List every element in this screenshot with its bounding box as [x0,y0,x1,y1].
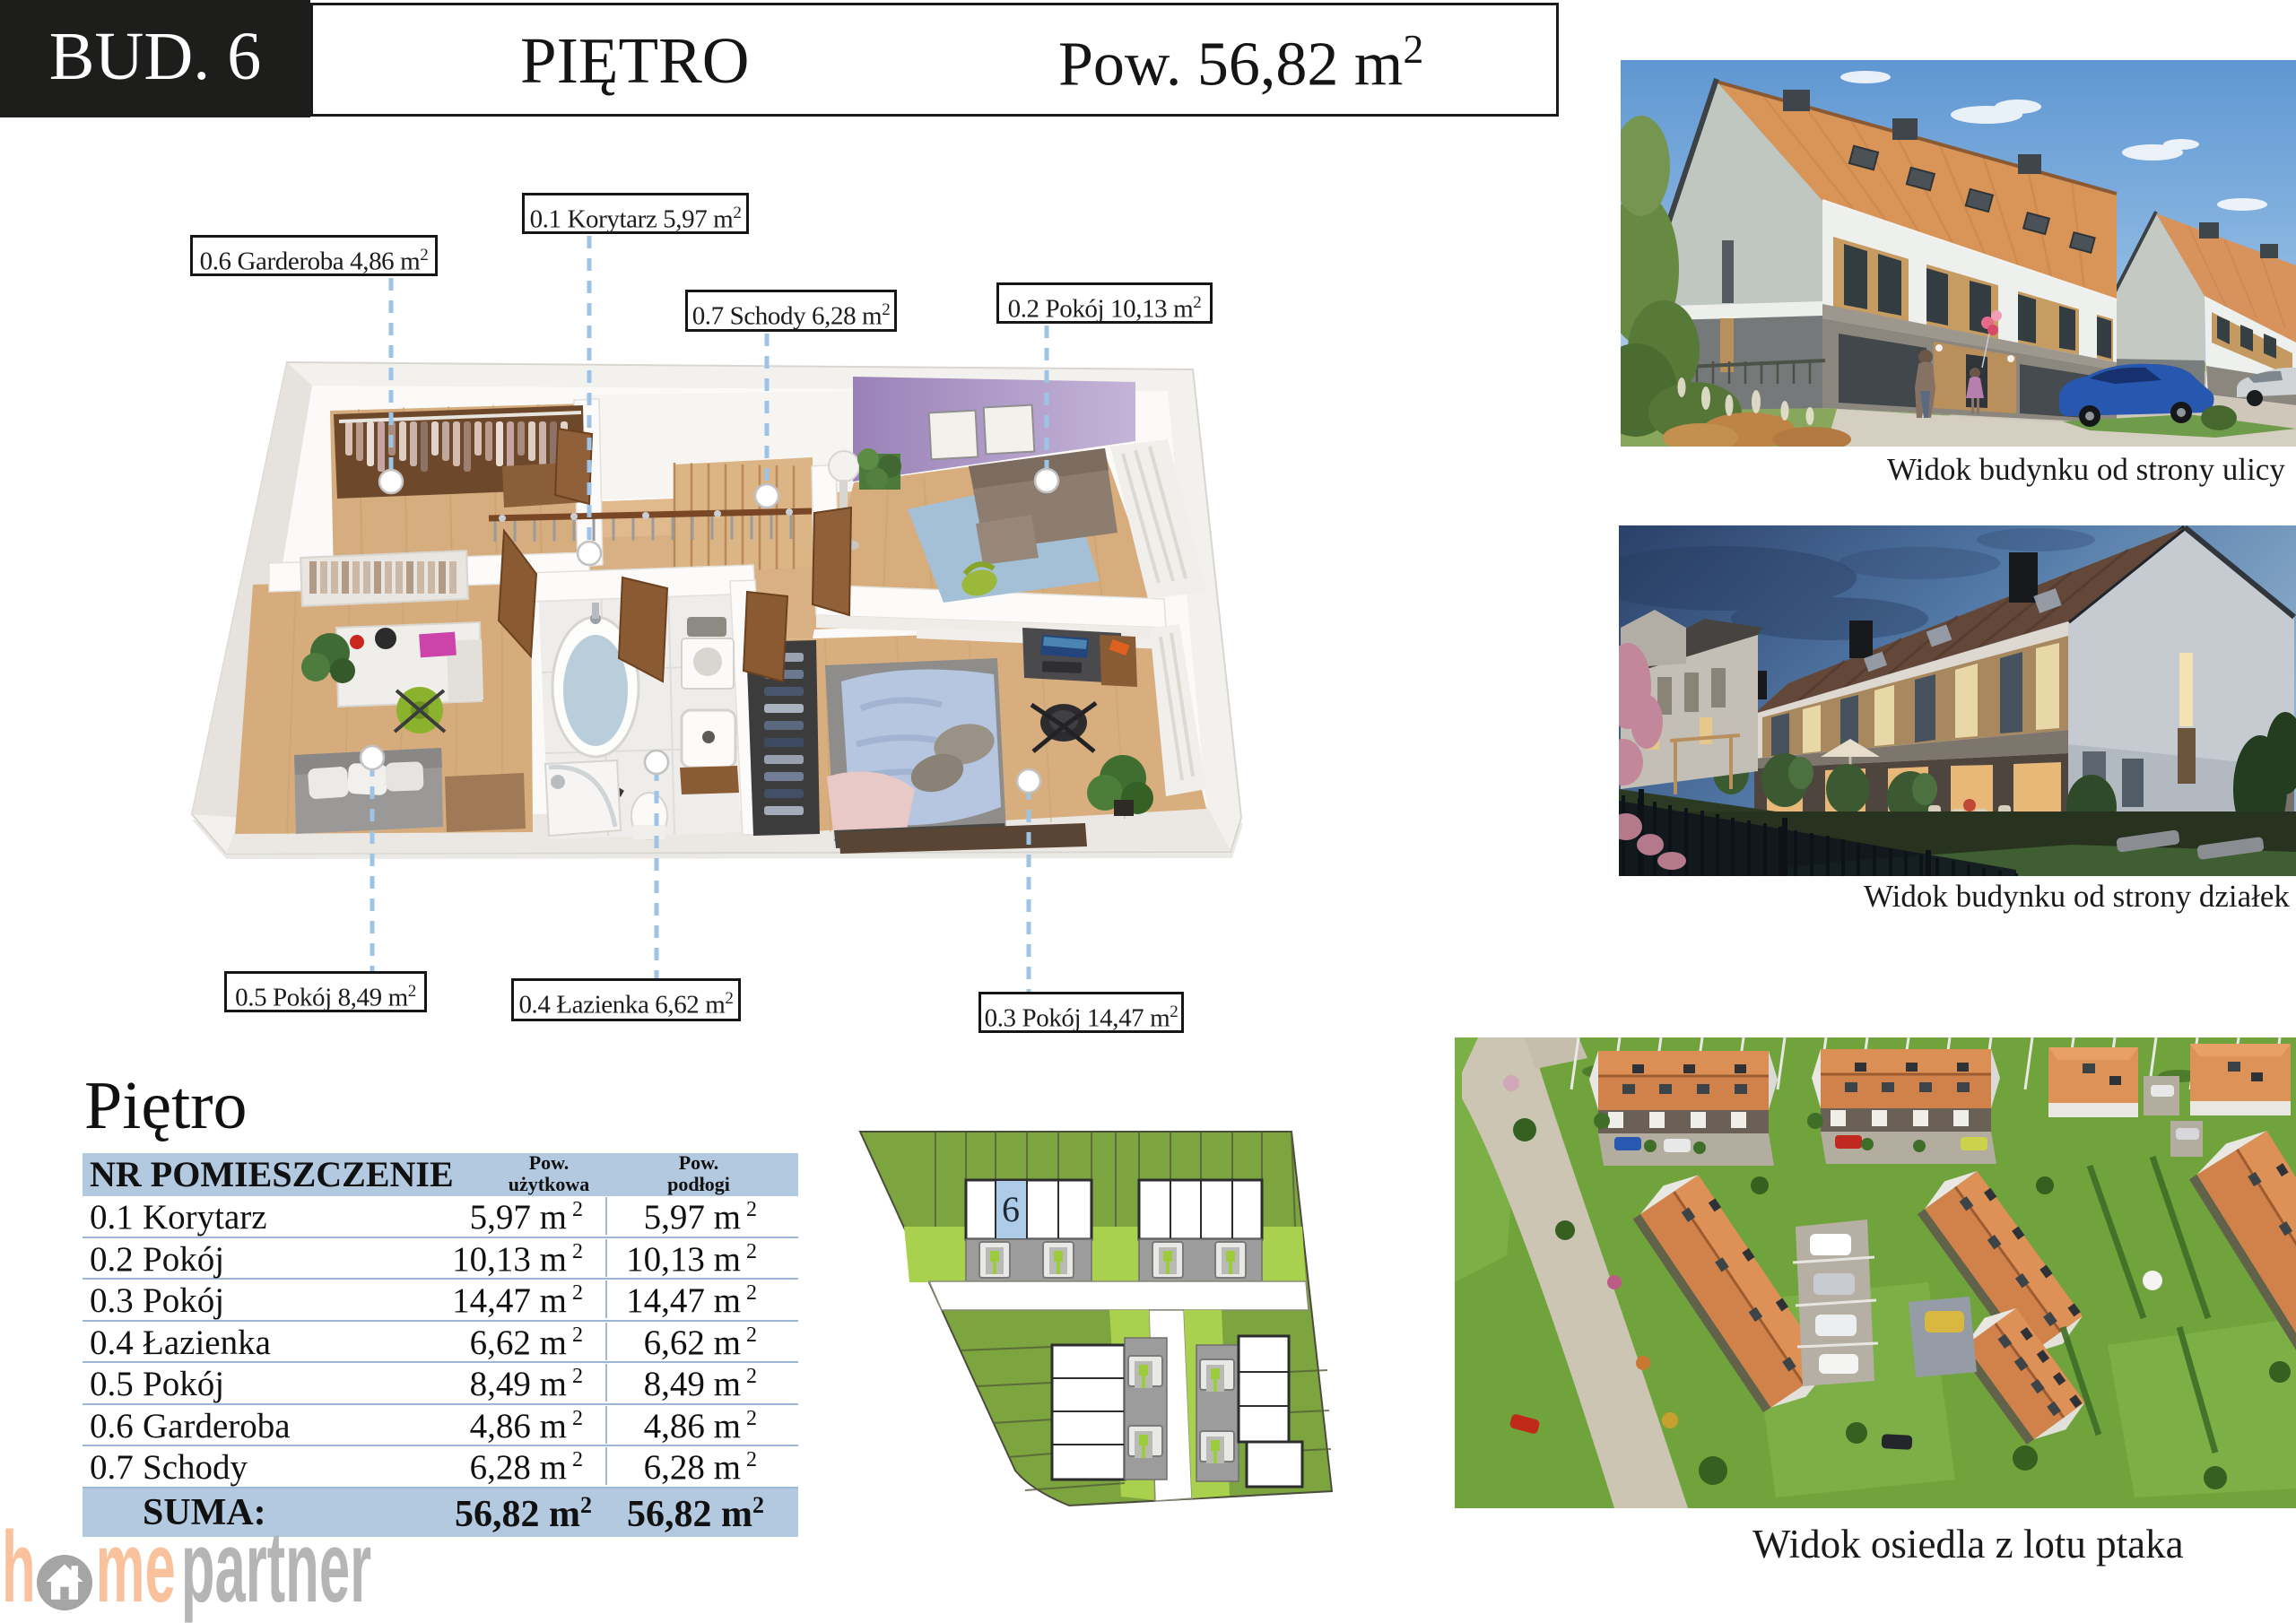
svg-text:6: 6 [1002,1189,1020,1229]
